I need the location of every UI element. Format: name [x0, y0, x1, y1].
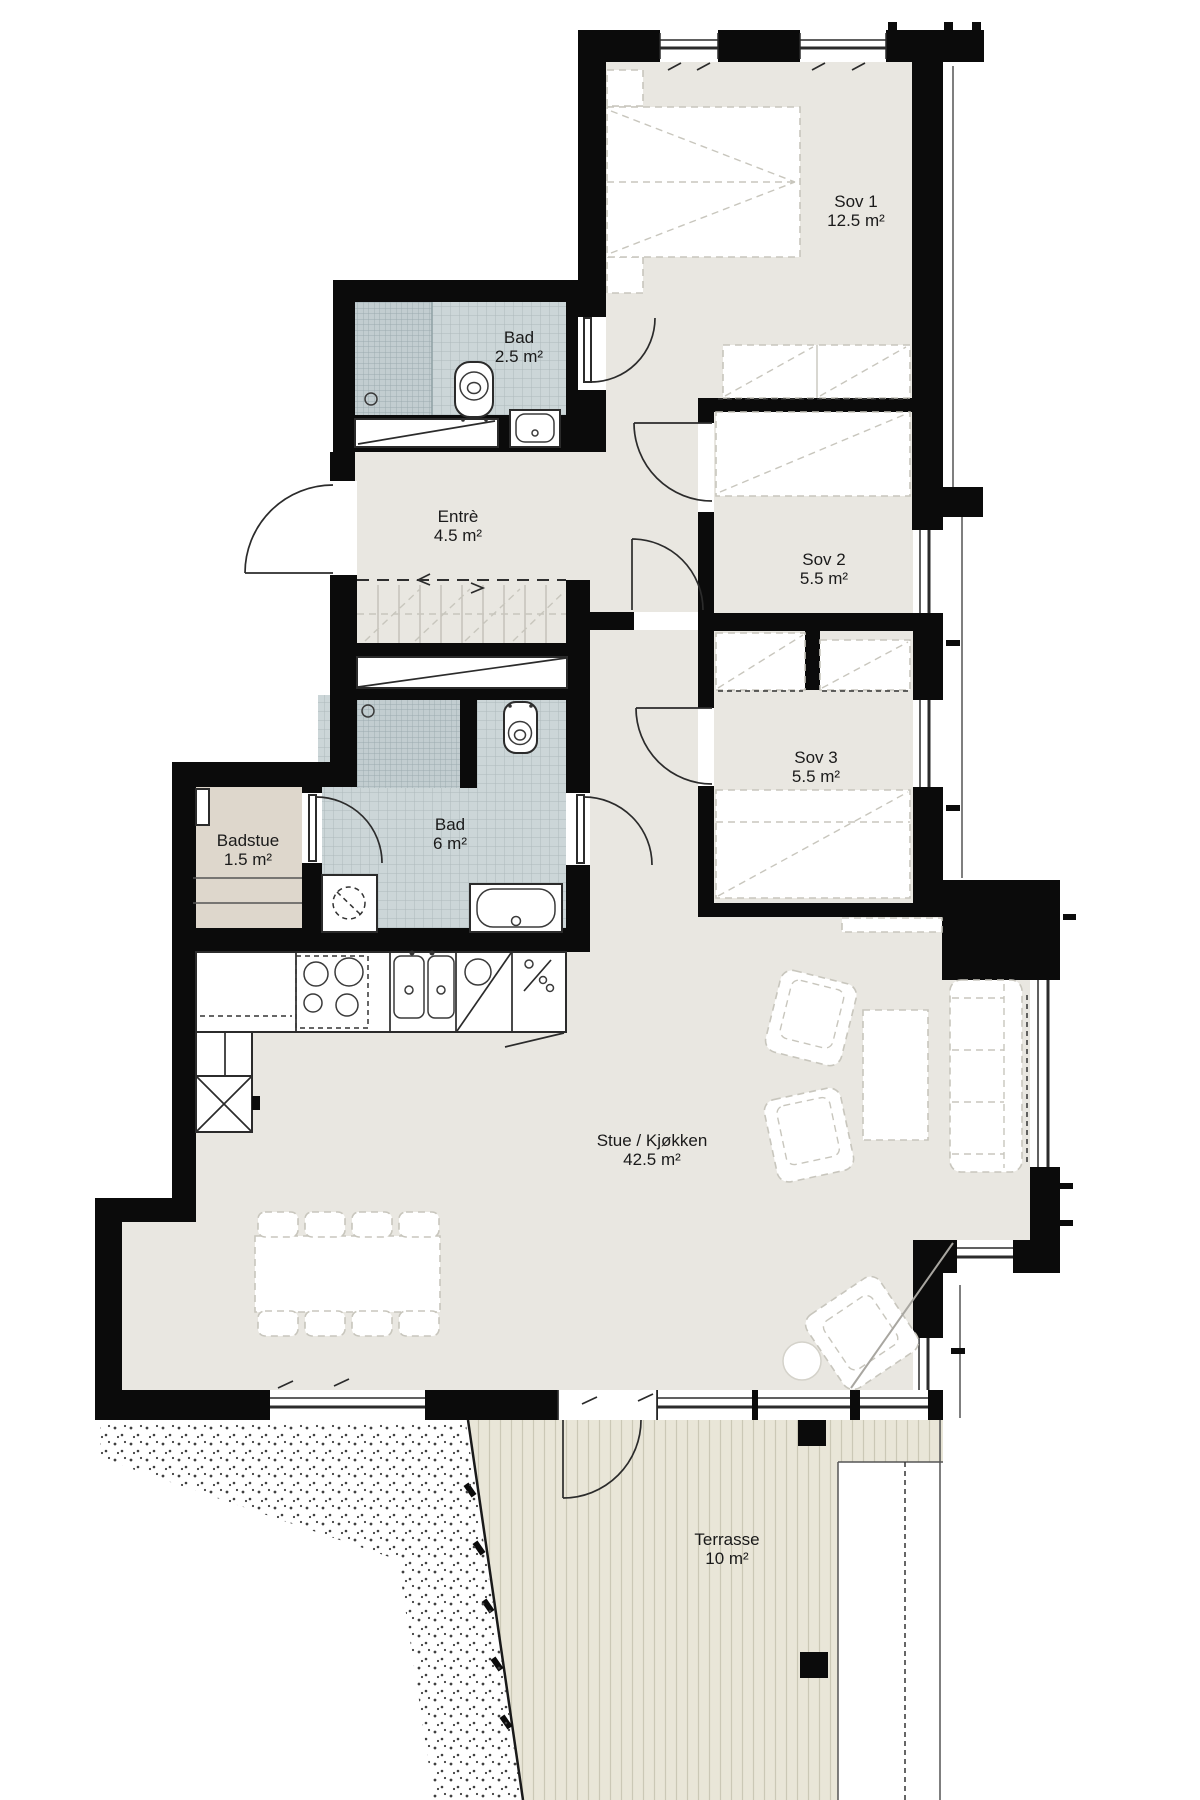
room-label-sov2: Sov 2: [802, 550, 845, 569]
room-area-sov2: 5.5 m²: [800, 569, 849, 588]
floor-bad-upper-shower: [355, 302, 432, 415]
terrace: [100, 1420, 943, 1800]
room-label-sov1: Sov 1: [834, 192, 877, 211]
room-label-bad-upper: Bad: [504, 328, 534, 347]
window: [860, 1390, 928, 1420]
room-label-sov3: Sov 3: [794, 748, 837, 767]
entrance-door: [245, 485, 333, 573]
floor-stue-sw: [110, 1210, 196, 1400]
window: [660, 30, 718, 62]
sliding-door-bad-upper: [355, 419, 498, 447]
room-area-entre: 4.5 m²: [434, 526, 483, 545]
chimney-icon: [196, 1076, 260, 1132]
room-label-entre: Entrè: [438, 507, 479, 526]
room-label-terrasse: Terrasse: [694, 1530, 759, 1549]
sideboard-icon: [842, 918, 942, 932]
gravel: [100, 1424, 522, 1800]
floor-hall-upper: [596, 390, 700, 452]
toilet-icon: [504, 702, 537, 753]
toilet-icon: [455, 362, 493, 422]
room-area-sov3: 5.5 m²: [792, 767, 841, 786]
room-label-bad-main: Bad: [435, 815, 465, 834]
bathroom-sink-icon: [510, 410, 560, 447]
room-area-sov1: 12.5 m²: [827, 211, 885, 230]
room-area-bad-upper: 2.5 m²: [495, 347, 544, 366]
bathtub-icon: [470, 884, 562, 932]
floor-bad-main-shower: [357, 695, 462, 788]
room-area-terrasse: 10 m²: [705, 1549, 749, 1568]
room-area-stue: 42.5 m²: [623, 1150, 681, 1169]
railing-post: [798, 1420, 826, 1446]
window: [658, 1390, 752, 1420]
window: [1030, 980, 1060, 1167]
room-label-badstue: Badstue: [217, 831, 279, 850]
floor-plan-svg: Sov 1 12.5 m² Bad 2.5 m² Entrè 4.5 m² So…: [0, 0, 1200, 1800]
single-bed-icon: [716, 790, 910, 898]
closet: [357, 657, 567, 688]
single-bed-icon: [716, 412, 910, 496]
room-area-bad-main: 6 m²: [433, 834, 467, 853]
washing-machine-icon: [322, 875, 377, 932]
window: [758, 1390, 850, 1420]
side-table-icon: [783, 1342, 821, 1380]
floor-plan-page: Sov 1 12.5 m² Bad 2.5 m² Entrè 4.5 m² So…: [0, 0, 1200, 1800]
kitchen-counter: [196, 952, 566, 1032]
window: [270, 1390, 425, 1420]
sofa-icon: [950, 980, 1022, 1172]
floor-corridor: [580, 600, 714, 945]
coffee-table-icon: [863, 1010, 928, 1140]
room-label-stue: Stue / Kjøkken: [597, 1131, 708, 1150]
window: [800, 30, 886, 62]
sauna-heater-icon: [196, 789, 209, 825]
terrace-deck: [468, 1420, 943, 1800]
railing-post: [800, 1652, 828, 1678]
room-area-badstue: 1.5 m²: [224, 850, 273, 869]
wardrobe-icon: [723, 345, 910, 398]
